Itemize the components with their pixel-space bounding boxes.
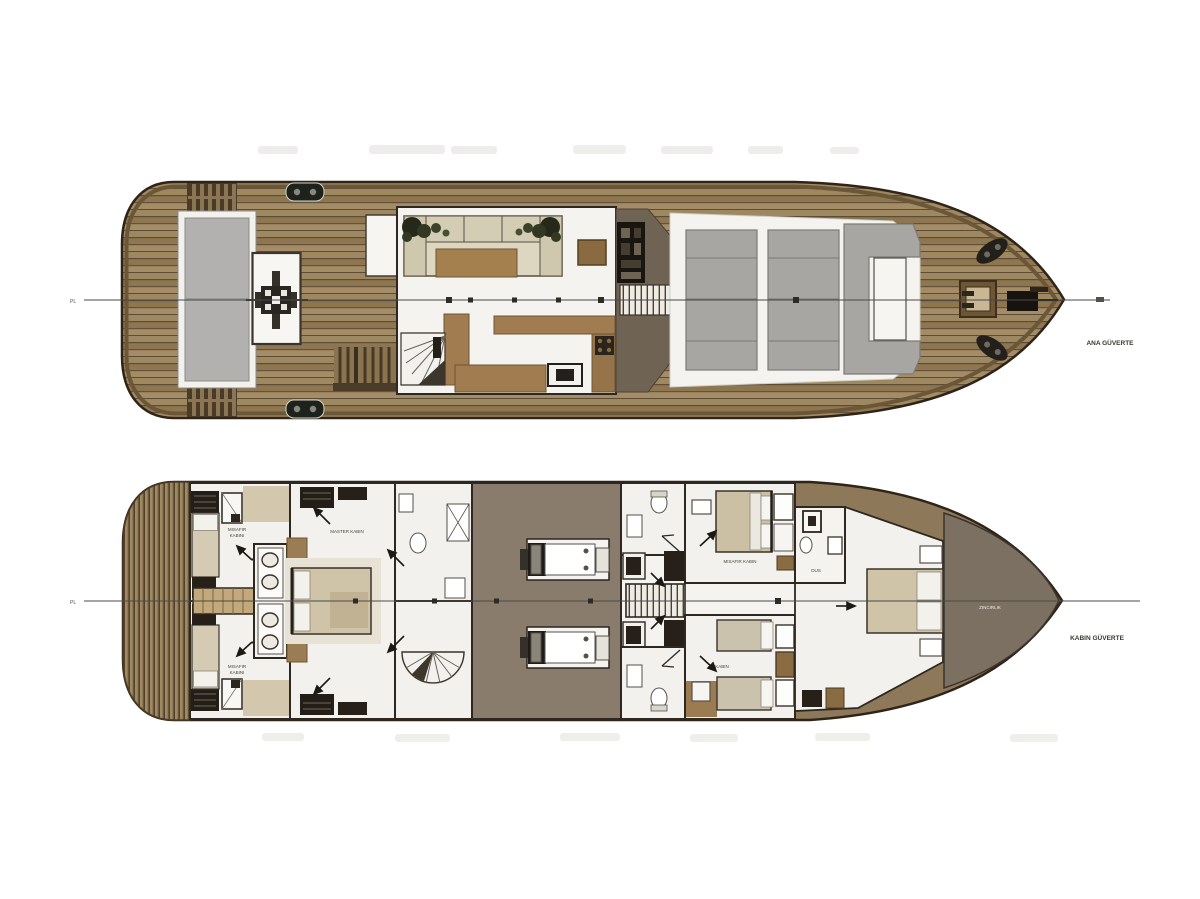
svg-text:MASTER KABIN: MASTER KABIN	[330, 529, 364, 534]
svg-text:MISAFIR: MISAFIR	[228, 527, 247, 532]
svg-text:MISAFIR: MISAFIR	[228, 664, 247, 669]
svg-text:KABINI: KABINI	[230, 670, 245, 675]
svg-text:DUS: DUS	[811, 568, 821, 573]
svg-text:ANA GÜVERTE: ANA GÜVERTE	[1086, 338, 1134, 347]
svg-text:KABIN: KABIN	[715, 664, 729, 669]
svg-text:KABIN GÜVERTE: KABIN GÜVERTE	[1070, 633, 1124, 642]
svg-text:KABINI: KABINI	[230, 533, 245, 538]
svg-text:PL: PL	[70, 299, 76, 305]
svg-text:PL: PL	[70, 600, 76, 606]
svg-text:MISAFIR KABIN: MISAFIR KABIN	[723, 559, 756, 564]
svg-text:ZINCIRLIK: ZINCIRLIK	[979, 605, 1001, 610]
